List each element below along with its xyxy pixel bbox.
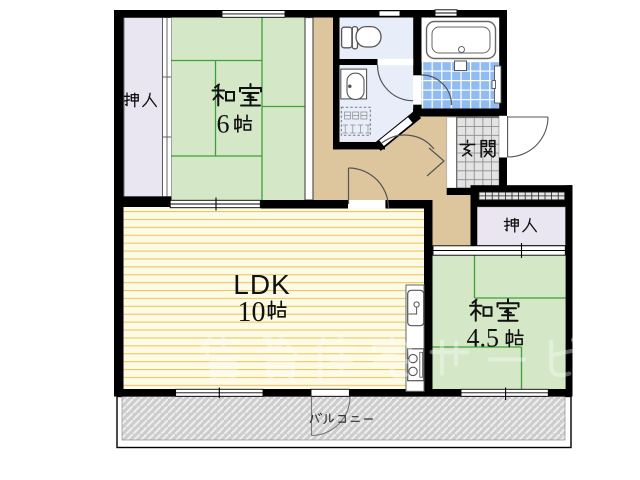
svg-text:4.5: 4.5 (467, 324, 500, 353)
svg-text:10: 10 (238, 297, 266, 328)
svg-text:6: 6 (217, 110, 230, 139)
svg-text:LDK: LDK (233, 269, 290, 300)
